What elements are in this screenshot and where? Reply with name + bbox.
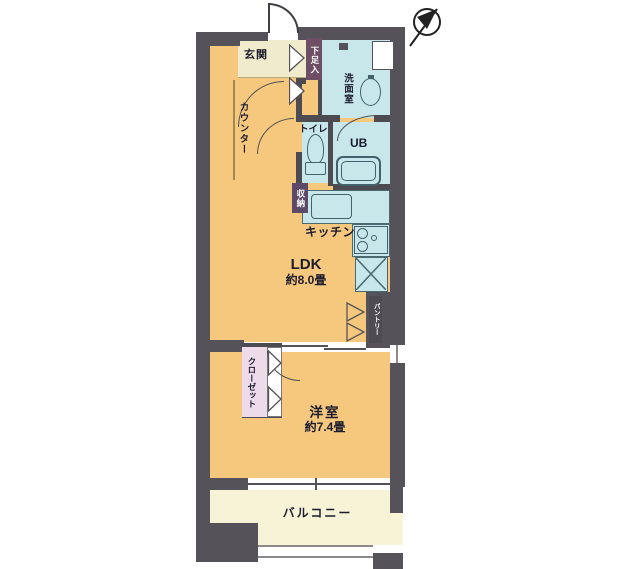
pantry-door-icon <box>346 302 366 342</box>
entrance-door-arc <box>268 3 299 33</box>
western-room-label-block: 洋室 約7.4畳 <box>280 402 370 438</box>
wall-balcony-left-stub <box>210 478 248 490</box>
sliding-window-line <box>248 483 390 485</box>
genkan-label: 玄関 <box>244 49 268 62</box>
wall-washroom-left <box>318 80 322 115</box>
unit-bath-label: UB <box>350 137 367 151</box>
western-room-label: 洋室 <box>310 405 341 421</box>
toilet-label: トイレ <box>299 125 328 136</box>
washbasin-icon <box>360 78 381 106</box>
balcony-label: バルコニー <box>250 506 385 522</box>
sliding-door-mid-line2 <box>324 348 366 350</box>
wall-bath-top-stub1 <box>332 115 340 122</box>
washroom-label: 洗面室 <box>340 66 353 112</box>
balcony-railing <box>258 545 373 558</box>
bathtub-inner-icon <box>341 161 376 181</box>
shoebox-label: 下足入 <box>306 41 322 79</box>
window-right-line <box>396 345 398 363</box>
ldk-size-label: 約8.0畳 <box>286 274 327 288</box>
wall-balcony-right <box>390 487 403 513</box>
counter-label: カウンター <box>235 92 249 164</box>
ldk-label-block: LDK 約8.0畳 <box>260 252 352 292</box>
washer-space <box>372 41 394 70</box>
stove-burner1-icon <box>357 228 368 239</box>
wall-right-upper <box>390 27 405 345</box>
western-room-size-label: 約7.4畳 <box>305 421 346 435</box>
washbasin-tap-icon <box>368 75 374 79</box>
ldk-label: LDK <box>291 256 322 273</box>
pantry-label: パントリー <box>369 297 382 342</box>
closet-label: クローゼット <box>244 349 258 415</box>
wall-toilet-top <box>296 115 332 122</box>
toilet-tank-icon <box>305 162 326 175</box>
north-arrow-icon <box>400 2 444 50</box>
wall-right-lower <box>390 363 405 487</box>
fridge-space-box <box>355 257 388 292</box>
wall-mid-stub <box>210 340 244 352</box>
wall-toilet-bath <box>328 122 333 186</box>
floor-plan: 玄関 下足入 洗面室 トイレ UB 収納 キッチン LDK 約8.0畳 カウンタ… <box>0 0 640 569</box>
sliding-door-mid-line1 <box>282 345 328 347</box>
faucet-box-icon <box>339 43 348 50</box>
x-mark-icon <box>356 258 386 290</box>
wall-hall-lower <box>296 152 302 185</box>
storage-label: 収納 <box>293 185 307 212</box>
pillar-bottom-left <box>196 523 258 562</box>
kitchen-label: キッチン <box>305 226 355 240</box>
wall-left <box>196 32 210 525</box>
sliding-window-tick <box>315 478 317 490</box>
kitchen-sink-icon <box>311 194 352 219</box>
stove-burner2-icon <box>357 241 368 252</box>
wall-top-genkan <box>240 32 268 41</box>
toilet-bowl-icon <box>307 134 324 164</box>
shoebox-door-icon <box>289 44 307 108</box>
stove-burner3-icon <box>371 235 377 241</box>
pillar-bottom-right <box>373 553 403 569</box>
wall-top-left-cap <box>196 32 240 46</box>
